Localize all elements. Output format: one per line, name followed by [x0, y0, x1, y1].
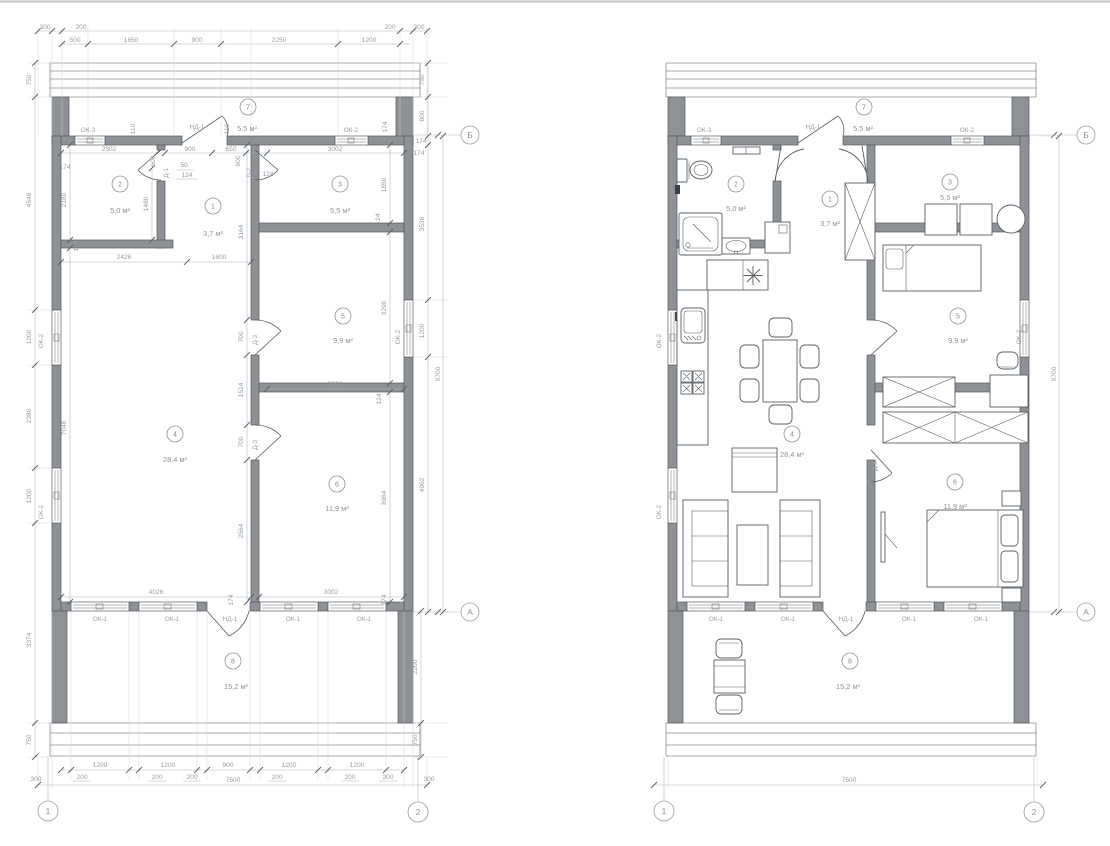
nightstand-icon [1002, 491, 1021, 506]
room-number: 8 [231, 659, 235, 666]
dim-label: 700 [238, 436, 245, 447]
dim-label: 174 [413, 150, 424, 157]
room-number: 6 [953, 480, 957, 487]
window-label: ОК-1 [902, 616, 917, 623]
dim-label: 300 [423, 776, 434, 783]
window-label: ОК-3 [81, 127, 96, 134]
dim-label: 2180 [61, 192, 68, 207]
dim-label: 1200 [26, 488, 33, 503]
room-area: 28,4 м² [780, 450, 805, 459]
dim-label: 4962 [419, 477, 426, 492]
room-number: 8 [848, 659, 852, 666]
grid-label: А [467, 607, 473, 617]
floor-plan-drawing: 1 3,7 м² 2 5,0 м² 3 5,5 м² 4 28,4 м² 5 9… [0, 0, 1110, 846]
desk-icon [990, 375, 1028, 407]
door-label: Д-1 [163, 168, 170, 178]
dim-label: 174 [381, 594, 388, 605]
window-label: ОК-1 [165, 616, 180, 623]
dim-label: 900 [184, 146, 195, 153]
dim-label: 110 [130, 123, 137, 134]
dim-label: 1200 [93, 762, 108, 769]
sofa-icon [780, 500, 820, 597]
dim-label: 124 [181, 172, 192, 179]
dim-label: 200 [344, 774, 355, 781]
room-number: 2 [118, 182, 122, 189]
dim-label: 1200 [350, 762, 365, 769]
sofa-icon [683, 500, 728, 597]
dim-label: 110 [224, 123, 231, 134]
door-label: Д-3 [252, 440, 259, 450]
pillow-icon [1001, 551, 1018, 582]
room-area: 11,9 м² [325, 504, 349, 513]
door-label: НД-1 [839, 616, 854, 623]
dim-label: 200 [151, 774, 162, 781]
dim-label: 200 [384, 24, 395, 31]
shower-tray-icon [679, 213, 722, 255]
dim-label: 750 [412, 734, 419, 745]
dim-label: 124 [262, 171, 273, 178]
dim-label: 650 [225, 146, 236, 153]
dim-label: 3002 [324, 589, 339, 596]
dim-label: 2380 [26, 408, 33, 423]
table-icon [714, 660, 745, 693]
grid-label: 1 [662, 806, 667, 816]
grid-label: 2 [416, 807, 421, 817]
chair-icon [769, 318, 792, 337]
dim-label: 4026 [149, 589, 164, 596]
chair-icon [740, 379, 759, 402]
dim-label: 3964 [381, 490, 388, 505]
dim-label: 9700 [435, 366, 442, 381]
chair-icon [800, 345, 819, 368]
dim-label: 600 [150, 155, 157, 166]
window-label: ОК-2 [1016, 329, 1023, 344]
door-label: Д-2 [246, 168, 253, 178]
window-label: ОК-2 [656, 504, 663, 519]
room-number: 3 [948, 180, 952, 187]
dim-label: 600 [235, 155, 242, 166]
door-d2-swing [839, 146, 868, 182]
dining-set [740, 318, 819, 424]
window-label: ОК-2 [960, 127, 975, 134]
right-plan: 7500 9700 [651, 63, 1095, 822]
room-number: 4 [790, 432, 794, 439]
window-label: ОК-2 [656, 333, 663, 348]
room-area: 9,9 м² [948, 336, 968, 345]
room-area: 11,9 м² [943, 502, 967, 511]
shelf-icon [733, 147, 760, 154]
dim-label: 124 [375, 213, 382, 224]
grid-label: Б [1083, 130, 1089, 140]
window-label: ОК-2 [38, 504, 45, 519]
door-label: Д-3 [872, 461, 879, 471]
room-area: 5,5 м² [853, 124, 873, 133]
door-label: НД-1 [806, 124, 821, 131]
window-label: ОК-1 [93, 616, 108, 623]
door-label: НД-1 [190, 124, 205, 131]
dim-label: 200 [186, 774, 197, 781]
terrace-furniture [714, 639, 745, 714]
dim-label: 174 [415, 138, 426, 145]
cabinet-icon [960, 204, 992, 235]
window-label: ОК-1 [709, 616, 724, 623]
dim-label: 200 [382, 774, 393, 781]
dim-label: 700 [238, 331, 245, 342]
dim-label: 200 [271, 774, 282, 781]
dim-label: 200 [75, 24, 86, 31]
dim-label: 900 [222, 762, 233, 769]
window-label: ОК-2 [38, 333, 45, 348]
single-bed-icon [883, 245, 981, 291]
window-label: ОК-2 [344, 127, 359, 134]
dim-label: 1200 [362, 37, 377, 44]
dim-label: 50 [180, 162, 188, 169]
dim-label: 3002 [328, 146, 343, 153]
room-area: 3,7 м² [203, 229, 223, 238]
room-number: 5 [956, 314, 960, 321]
room-area: 5,0 м² [726, 204, 746, 213]
room-area: 5,0 м² [110, 206, 130, 215]
dim-label: 174 [228, 594, 235, 605]
dim-label: 4548 [26, 192, 33, 207]
floor-plan-canvas: 1 3,7 м² 2 5,0 м² 3 5,5 м² 4 28,4 м² 5 9… [0, 0, 1110, 846]
dim-label: 500 [69, 37, 80, 44]
riser-icon [675, 185, 680, 194]
coffee-table-icon [737, 525, 768, 585]
dim-label: 800 [419, 110, 426, 121]
room-area: 15,2 м² [836, 682, 861, 691]
dim-label: 300 [39, 24, 50, 31]
pillow-icon [1001, 515, 1018, 546]
chair-icon [740, 345, 759, 368]
room-area: 5,5 м² [330, 206, 350, 215]
dim-label: 174 [382, 121, 389, 132]
room-area: 5,5 м² [940, 193, 960, 202]
living-room-furniture [683, 448, 820, 597]
kitchen-counter-icon [707, 260, 768, 290]
dim-label: 750 [26, 734, 33, 745]
dim-label: 1200 [161, 762, 176, 769]
chair-icon [769, 405, 792, 424]
wardrobe-icon [883, 412, 1028, 443]
window-label: ОК-1 [781, 616, 796, 623]
dim-label: 1524 [238, 382, 245, 397]
door-d3-room5 [871, 320, 897, 355]
room-area: 28,4 м² [163, 455, 188, 464]
room-number: 1 [211, 204, 215, 211]
dim-label: 200 [76, 774, 87, 781]
storage-room-furniture [925, 204, 1025, 235]
grid-label: Б [467, 130, 473, 140]
grid-label: 2 [1032, 807, 1037, 817]
window-label: ОК-1 [974, 616, 989, 623]
grid-label: А [1083, 607, 1089, 617]
dim-label: 1650 [124, 37, 139, 44]
dim-label: 2250 [272, 37, 287, 44]
dim-label: 3374 [26, 632, 33, 647]
chair-icon [716, 695, 742, 714]
door-d1-swing [775, 146, 804, 182]
dim-label: 900 [191, 37, 202, 44]
dim-label: 124 [73, 240, 80, 251]
nightstand-icon [1002, 588, 1021, 602]
tv-icon [881, 512, 885, 562]
window-label: ОК-1 [357, 616, 372, 623]
dim-label: 2426 [117, 254, 132, 261]
cabinet-icon [925, 204, 957, 235]
dim-label: 7500 [226, 777, 241, 784]
room-area: 5,5 м² [237, 124, 257, 133]
door-label: НД-1 [223, 616, 238, 623]
room-number: 6 [335, 482, 339, 489]
room-number: 1 [828, 197, 832, 204]
dim-label: 9700 [1051, 366, 1058, 381]
toilet-icon [690, 161, 712, 179]
chair-icon [997, 352, 1018, 369]
dim-label: 1200 [26, 329, 33, 344]
room-area: 3,7 м² [820, 219, 840, 228]
dim-label: 2564 [238, 523, 245, 538]
room-number: 5 [341, 314, 345, 321]
sink-icon [681, 308, 705, 343]
dim-label: 1600 [212, 254, 227, 261]
dim-label: 1480 [143, 196, 150, 211]
dim-label: 7048 [61, 420, 68, 435]
dim-label: 1200 [282, 762, 297, 769]
dim-label: 3002 [328, 381, 343, 388]
dim-label: 2302 [102, 146, 117, 153]
toilet-tank-icon [677, 159, 687, 182]
dim-label: 1200 [419, 323, 426, 338]
dim-label: 750 [419, 74, 426, 85]
dim-label: 124 [376, 393, 383, 404]
dim-label: 300 [30, 776, 41, 783]
washing-machine-icon [765, 222, 790, 253]
room-number: 7 [862, 105, 866, 112]
room-number: 2 [734, 182, 738, 189]
dim-label: 1850 [381, 177, 388, 192]
tv-stand-icon [732, 448, 777, 492]
room-number: 7 [246, 105, 250, 112]
dim-label: 174 [59, 164, 70, 171]
room-number: 4 [173, 432, 177, 439]
hall-wardrobe [845, 183, 875, 260]
dim-label: 3538 [419, 216, 426, 231]
window-label: ОК-1 [286, 616, 301, 623]
dim-label: 750 [26, 74, 33, 85]
dim-label: 3290 [381, 300, 388, 315]
dim-label: 7500 [842, 777, 857, 784]
room-area: 9,9 м² [333, 336, 353, 345]
dining-table-icon [763, 340, 797, 402]
chair-icon [716, 639, 742, 658]
room-number: 3 [338, 182, 342, 189]
room-area: 15,2 м² [224, 682, 249, 691]
left-plan: 1 3,7 м² 2 5,0 м² 3 5,5 м² 4 28,4 м² 5 9… [26, 24, 479, 822]
door-label: Д-3 [252, 335, 259, 345]
window-label: ОК-2 [395, 329, 402, 344]
grid-label: 1 [46, 806, 51, 816]
dim-label: 3164 [238, 224, 245, 239]
chair-icon [800, 379, 819, 402]
dim-label: 300 [413, 24, 424, 31]
window-label: ОК-3 [697, 127, 712, 134]
boiler-icon [997, 205, 1025, 233]
dim-label: 2200 [412, 659, 419, 674]
